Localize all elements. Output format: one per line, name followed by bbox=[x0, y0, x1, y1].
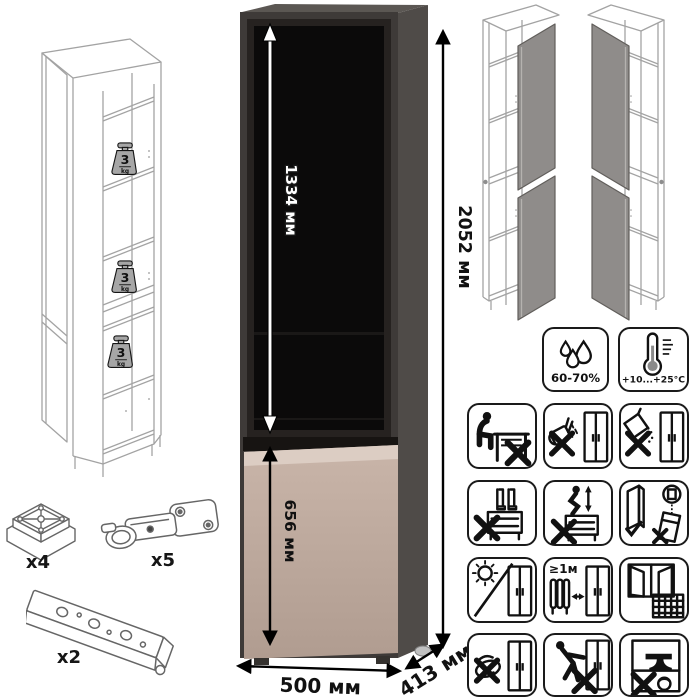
width-arrow bbox=[239, 666, 399, 671]
no-standing-icon bbox=[467, 480, 537, 546]
glass-door bbox=[254, 26, 384, 430]
furniture-spec-sheet: { "product": { "dimensions": { "total_he… bbox=[0, 0, 689, 700]
cabinet-render: 1334 мм 656 мм 2052 мм 500 мм 413 мм bbox=[230, 0, 490, 700]
lower-door bbox=[244, 445, 398, 659]
variant-right-hinged bbox=[588, 5, 664, 320]
no-pouring-liquid-icon bbox=[543, 403, 613, 469]
cabinet-side-panel bbox=[398, 5, 428, 658]
wireframe-open-cabinet: 3 kg 3 kg 3 kg bbox=[8, 35, 228, 491]
no-abrasive-cleaning-icon bbox=[467, 633, 537, 697]
no-direct-sunlight-icon bbox=[467, 557, 537, 623]
humidity-icon: 60-70% bbox=[542, 327, 609, 392]
shelf-load-unit: kg bbox=[117, 362, 125, 368]
rail-qty-label: x2 bbox=[49, 647, 89, 668]
door-orientation-variants bbox=[458, 0, 689, 322]
cabinet-foot bbox=[376, 656, 390, 664]
lower-door-height-label: 656 мм bbox=[281, 499, 299, 562]
hinge-qty-label: x5 bbox=[143, 550, 183, 571]
no-jumping-icon bbox=[543, 480, 613, 546]
variant-left-hinged bbox=[483, 5, 559, 320]
room-ventilation-icon: 21 bbox=[619, 557, 689, 623]
shelf-load-badge: 3 kg bbox=[112, 261, 136, 293]
no-heavy-items-icon bbox=[619, 633, 689, 697]
shelf-load-value: 3 bbox=[121, 152, 130, 167]
shelf-load-badge: 3 kg bbox=[108, 336, 132, 368]
heater-distance-icon: ≥1м bbox=[543, 557, 613, 623]
calendar-day: 21 bbox=[670, 607, 680, 615]
door-adjustment-icon bbox=[619, 480, 689, 546]
shelf-load-unit: kg bbox=[121, 287, 129, 293]
heater-distance-value: ≥1м bbox=[549, 562, 578, 576]
shelf-load-badge: 3 kg bbox=[112, 143, 136, 175]
width-label: 500 мм bbox=[279, 673, 361, 700]
no-pushing-icon bbox=[543, 633, 613, 697]
no-sitting-icon bbox=[467, 403, 537, 469]
glass-height-label: 1334 мм bbox=[282, 164, 300, 236]
cabinet-foot bbox=[254, 658, 269, 665]
plinth-rail-part bbox=[26, 584, 178, 688]
foot-qty-label: x4 bbox=[18, 552, 58, 573]
temperature-icon: +10...+25°C bbox=[618, 327, 689, 392]
temperature-value: +10...+25°C bbox=[622, 375, 685, 386]
humidity-value: 60-70% bbox=[551, 371, 600, 385]
no-spilling-powder-icon bbox=[619, 403, 689, 469]
cabinet-top-edge bbox=[242, 4, 428, 13]
shelf-load-value: 3 bbox=[117, 345, 126, 360]
shelf-load-value: 3 bbox=[121, 270, 130, 285]
shelf-load-unit: kg bbox=[121, 169, 129, 175]
